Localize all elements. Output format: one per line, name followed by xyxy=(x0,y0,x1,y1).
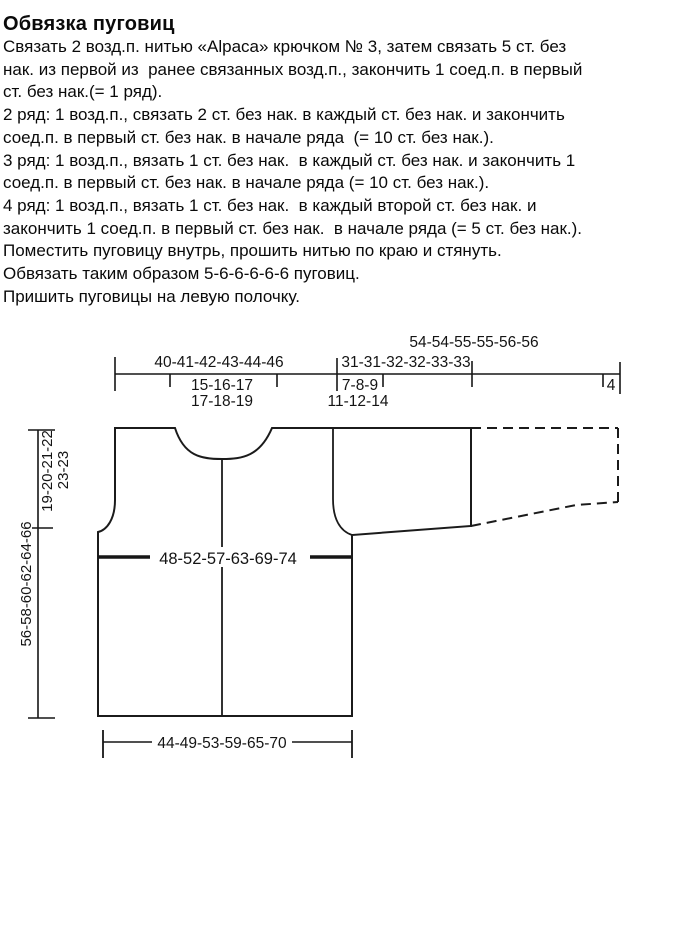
label-hem-width: 44-49-53-59-65-70 xyxy=(157,735,287,752)
armhole-boundary-line xyxy=(333,428,352,535)
label-neck-line2: 11-12-14 xyxy=(328,393,389,410)
label-shoulder-line1: 15-16-17 xyxy=(191,377,253,394)
label-total-length: 56-58-60-62-64-66 xyxy=(18,521,35,646)
garment-outline xyxy=(98,428,471,716)
label-sleeve-top-width: 31-31-32-32-33-33 xyxy=(341,354,470,371)
garment-schematic-svg: 54-54-55-55-56-56 40-41-42-43-44-46 31-3… xyxy=(0,0,680,945)
chest-measurement: 48-52-57-63-69-74 xyxy=(98,547,351,568)
hem-measurement: 44-49-53-59-65-70 xyxy=(103,730,352,758)
sleeve-dashed-extension xyxy=(471,428,618,526)
label-cuff: 4 xyxy=(607,377,616,394)
pattern-page: { "page": { "background": "#ffffff", "in… xyxy=(0,0,680,945)
label-armhole-depth-line2: 23-23 xyxy=(55,451,72,489)
label-armhole-depth-line1: 19-20-21-22 xyxy=(39,430,56,512)
label-back-width: 40-41-42-43-44-46 xyxy=(154,354,283,371)
label-chest-width: 48-52-57-63-69-74 xyxy=(159,550,297,568)
label-sleeve-total: 54-54-55-55-56-56 xyxy=(409,334,538,351)
label-shoulder-line2: 17-18-19 xyxy=(191,393,253,410)
sleeve-dashed-bottom xyxy=(471,502,618,526)
label-neck-line1: 7-8-9 xyxy=(342,377,378,394)
